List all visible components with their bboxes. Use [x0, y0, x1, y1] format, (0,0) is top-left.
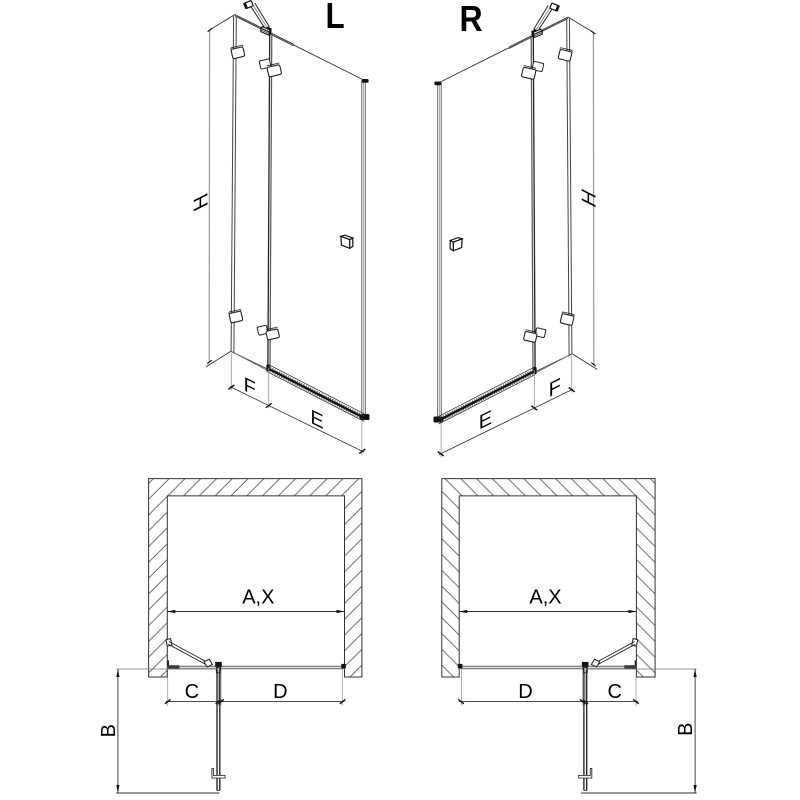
svg-text:L: L [326, 0, 345, 37]
svg-text:B: B [98, 724, 120, 737]
svg-text:D: D [273, 681, 287, 703]
svg-text:B: B [675, 723, 697, 736]
svg-text:R: R [460, 0, 483, 39]
svg-text:C: C [608, 681, 622, 703]
svg-text:A,X: A,X [529, 587, 561, 609]
svg-text:D: D [518, 681, 532, 703]
svg-text:C: C [185, 681, 199, 703]
svg-text:A,X: A,X [242, 587, 274, 609]
